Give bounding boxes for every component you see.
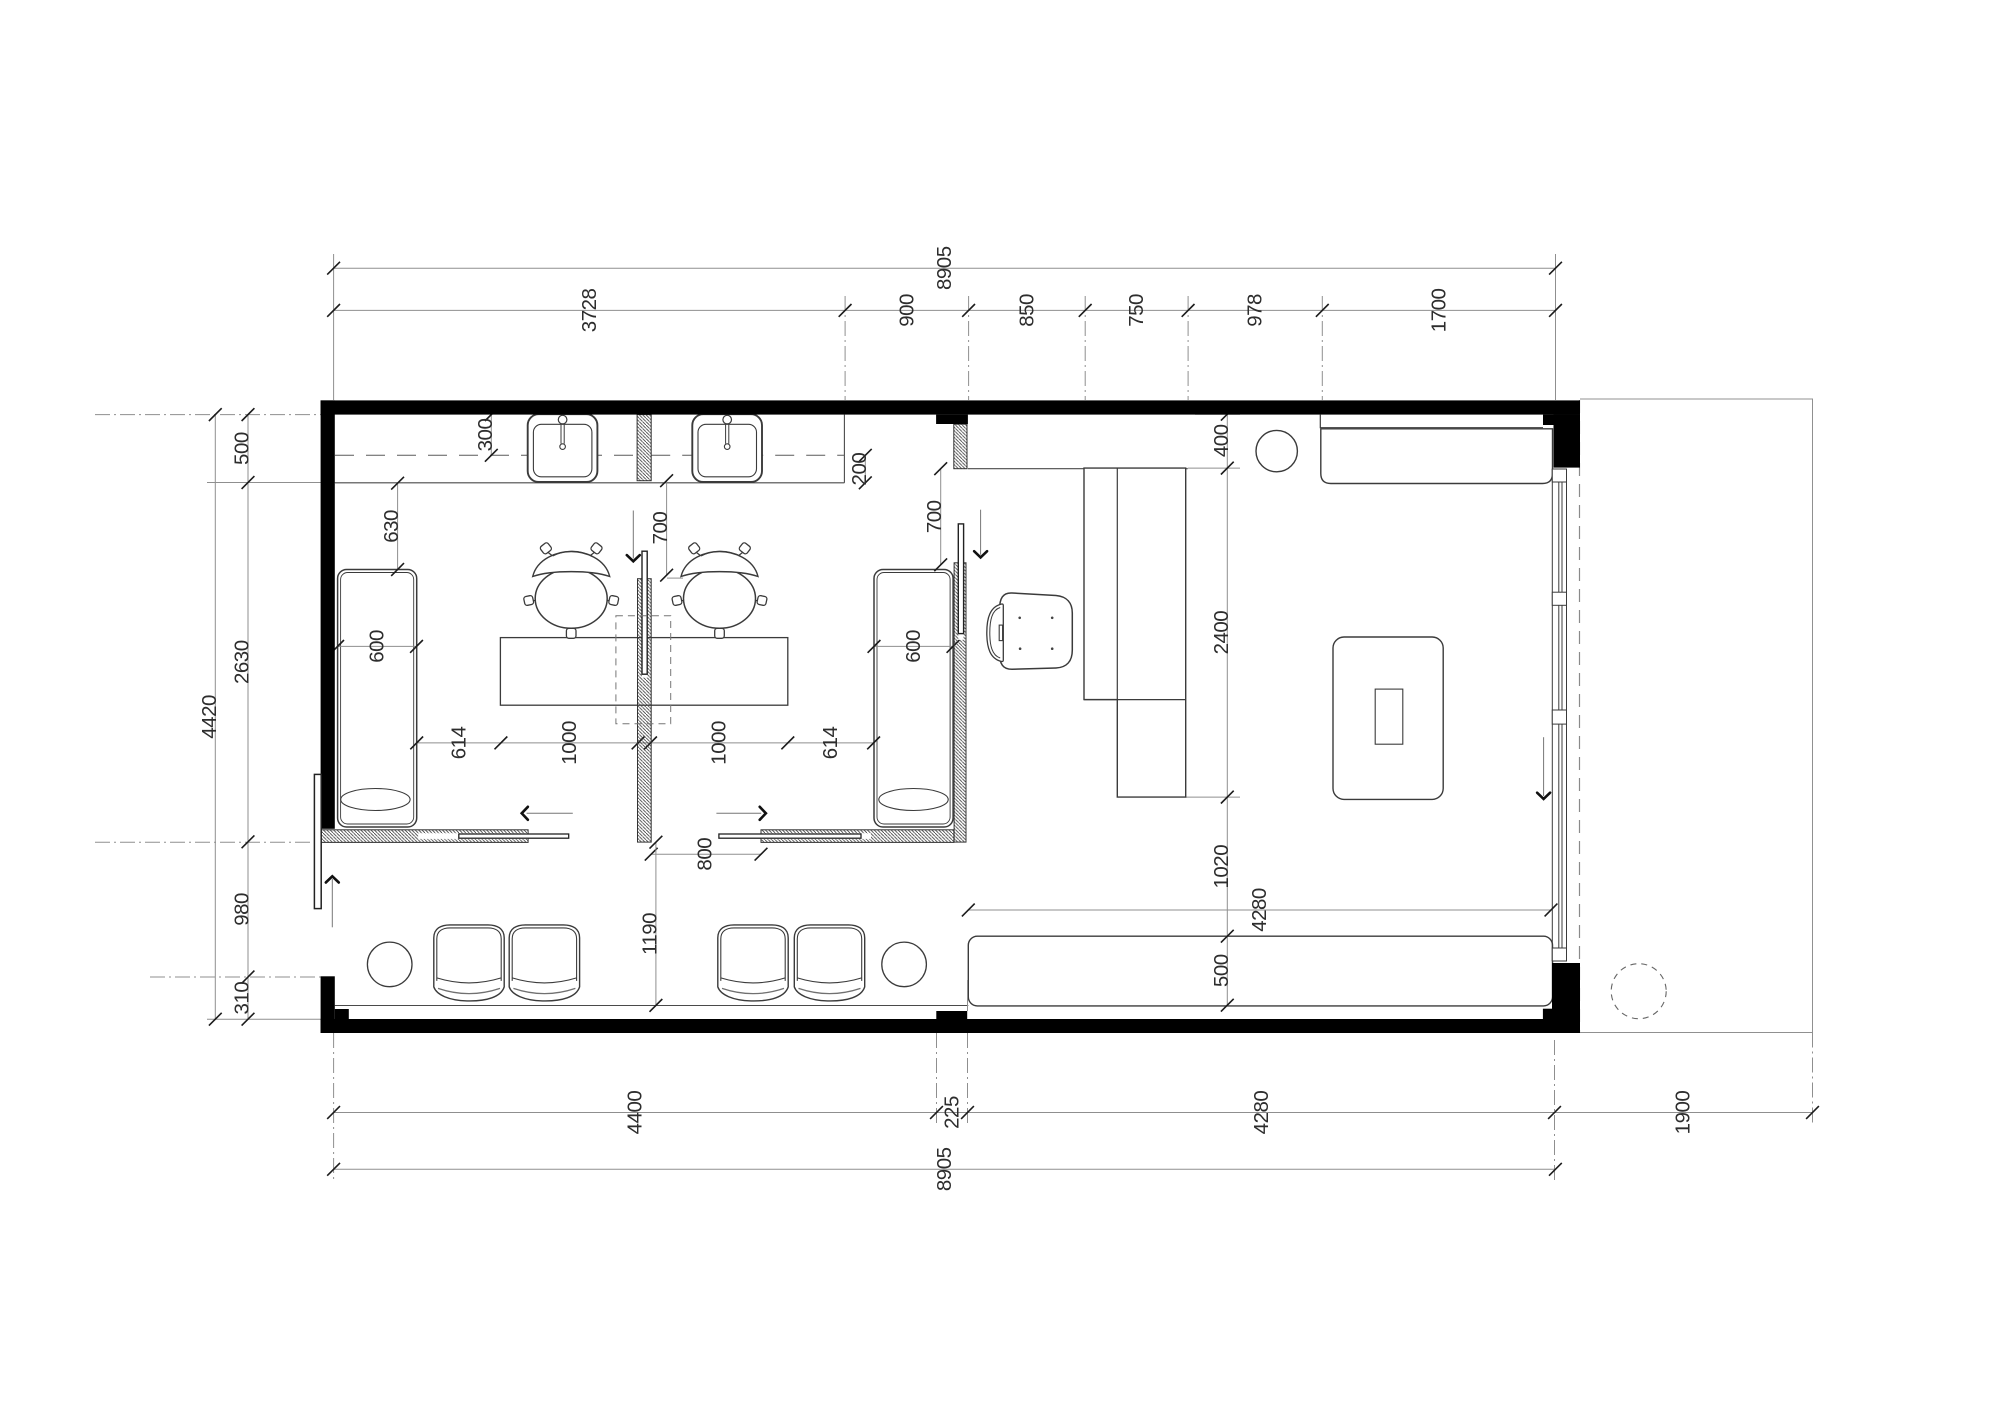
- svg-text:1700: 1700: [1427, 289, 1450, 333]
- svg-text:2400: 2400: [1210, 611, 1233, 655]
- svg-text:978: 978: [1244, 294, 1267, 327]
- svg-text:1900: 1900: [1672, 1091, 1695, 1135]
- svg-text:1000: 1000: [708, 721, 731, 765]
- svg-text:614: 614: [447, 726, 470, 759]
- svg-text:600: 600: [366, 630, 389, 663]
- svg-text:200: 200: [848, 453, 871, 486]
- svg-text:3728: 3728: [578, 289, 601, 333]
- svg-text:4280: 4280: [1248, 888, 1271, 932]
- svg-text:1190: 1190: [638, 913, 661, 955]
- svg-text:900: 900: [895, 294, 918, 327]
- svg-text:1000: 1000: [558, 721, 581, 765]
- svg-text:600: 600: [902, 630, 925, 663]
- svg-text:2630: 2630: [231, 640, 254, 684]
- svg-text:850: 850: [1015, 294, 1038, 327]
- svg-text:1020: 1020: [1210, 845, 1233, 889]
- svg-text:225: 225: [941, 1096, 964, 1129]
- svg-text:300: 300: [474, 419, 497, 452]
- svg-text:700: 700: [923, 500, 946, 533]
- svg-text:4280: 4280: [1250, 1091, 1273, 1135]
- svg-text:700: 700: [649, 512, 672, 545]
- svg-text:4420: 4420: [198, 695, 221, 739]
- svg-text:500: 500: [1210, 954, 1233, 987]
- svg-text:8905: 8905: [933, 1147, 956, 1191]
- svg-text:4400: 4400: [624, 1091, 647, 1135]
- svg-text:400: 400: [1210, 424, 1233, 457]
- svg-text:800: 800: [693, 838, 716, 871]
- svg-text:8905: 8905: [933, 246, 956, 290]
- svg-text:630: 630: [380, 510, 403, 543]
- svg-text:980: 980: [231, 893, 254, 926]
- svg-text:500: 500: [231, 432, 254, 465]
- svg-text:310: 310: [231, 982, 254, 1015]
- svg-text:614: 614: [819, 726, 842, 759]
- svg-text:750: 750: [1125, 294, 1148, 327]
